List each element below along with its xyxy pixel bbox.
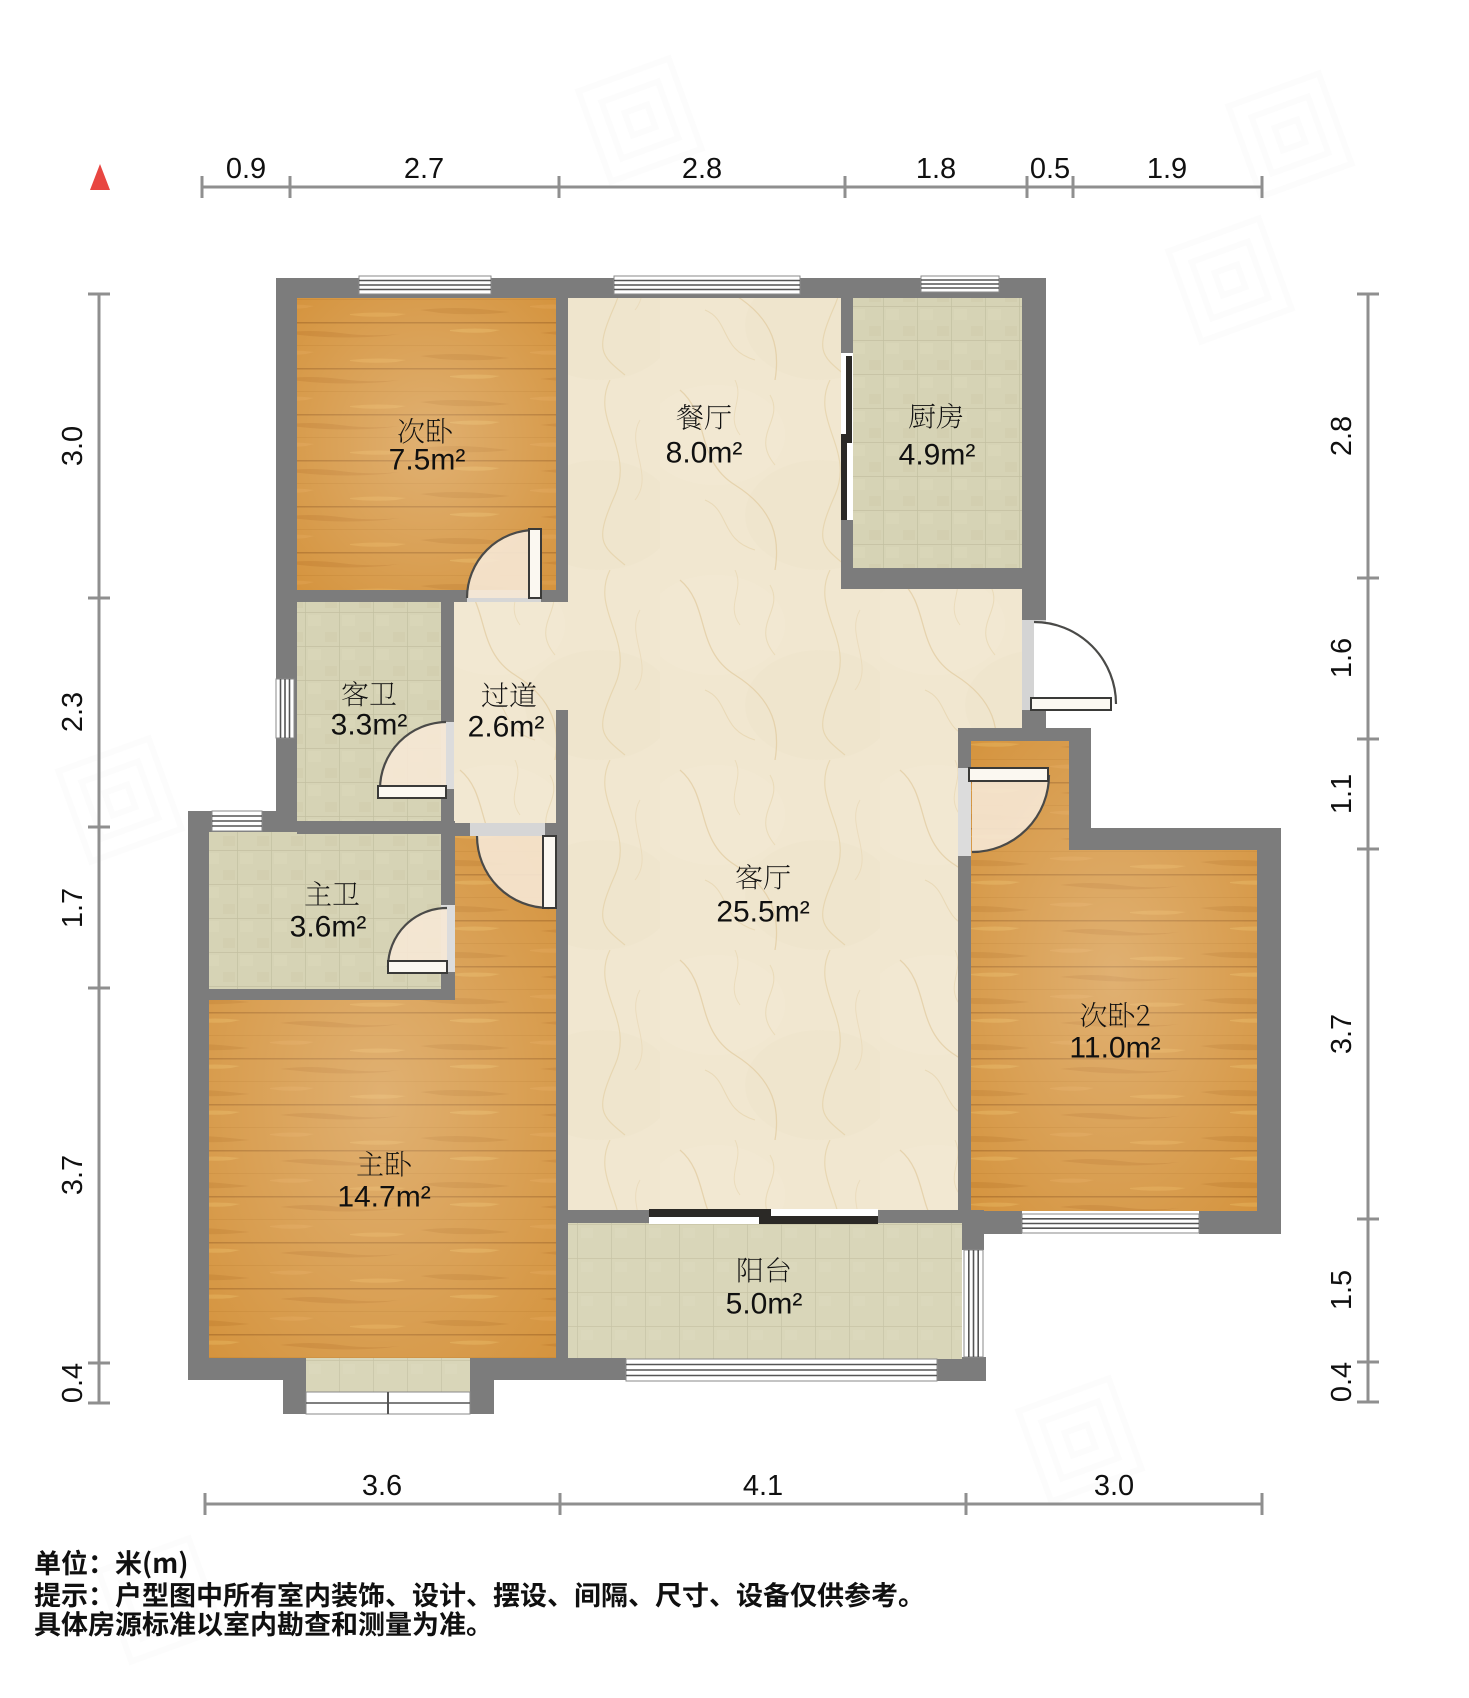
svg-text:0.9: 0.9 <box>226 153 266 185</box>
svg-text:1.5: 1.5 <box>1326 1270 1358 1310</box>
svg-text:2.8: 2.8 <box>682 153 722 185</box>
svg-text:5.0m²: 5.0m² <box>726 1288 803 1321</box>
svg-text:3.7: 3.7 <box>1326 1014 1358 1054</box>
svg-text:4.1: 4.1 <box>743 1470 783 1502</box>
svg-text:7.5m²: 7.5m² <box>389 444 466 477</box>
svg-text:1.7: 1.7 <box>57 888 89 928</box>
svg-text:3.6: 3.6 <box>362 1470 402 1502</box>
svg-text:14.7m²: 14.7m² <box>337 1181 430 1214</box>
svg-text:0.5: 0.5 <box>1030 153 1070 185</box>
svg-text:1.8: 1.8 <box>916 153 956 185</box>
svg-text:1.6: 1.6 <box>1326 638 1358 678</box>
svg-text:8.0m²: 8.0m² <box>666 437 743 470</box>
svg-text:3.0: 3.0 <box>1094 1470 1134 1502</box>
svg-text:2.3: 2.3 <box>57 692 89 732</box>
svg-text:1.1: 1.1 <box>1326 774 1358 814</box>
svg-text:2.8: 2.8 <box>1326 416 1358 456</box>
svg-text:0.4: 0.4 <box>1326 1362 1358 1402</box>
svg-text:1.9: 1.9 <box>1147 153 1187 185</box>
svg-text:4.9m²: 4.9m² <box>899 439 976 472</box>
svg-text:3.6m²: 3.6m² <box>290 911 367 944</box>
svg-text:0.4: 0.4 <box>57 1363 89 1403</box>
svg-text:3.7: 3.7 <box>57 1155 89 1195</box>
svg-text:2.6m²: 2.6m² <box>468 711 545 744</box>
svg-text:2.7: 2.7 <box>404 153 444 185</box>
svg-text:3.0: 3.0 <box>57 426 89 466</box>
svg-text:3.3m²: 3.3m² <box>331 709 408 742</box>
svg-text:11.0m²: 11.0m² <box>1069 1032 1160 1065</box>
svg-text:25.5m²: 25.5m² <box>716 896 809 929</box>
